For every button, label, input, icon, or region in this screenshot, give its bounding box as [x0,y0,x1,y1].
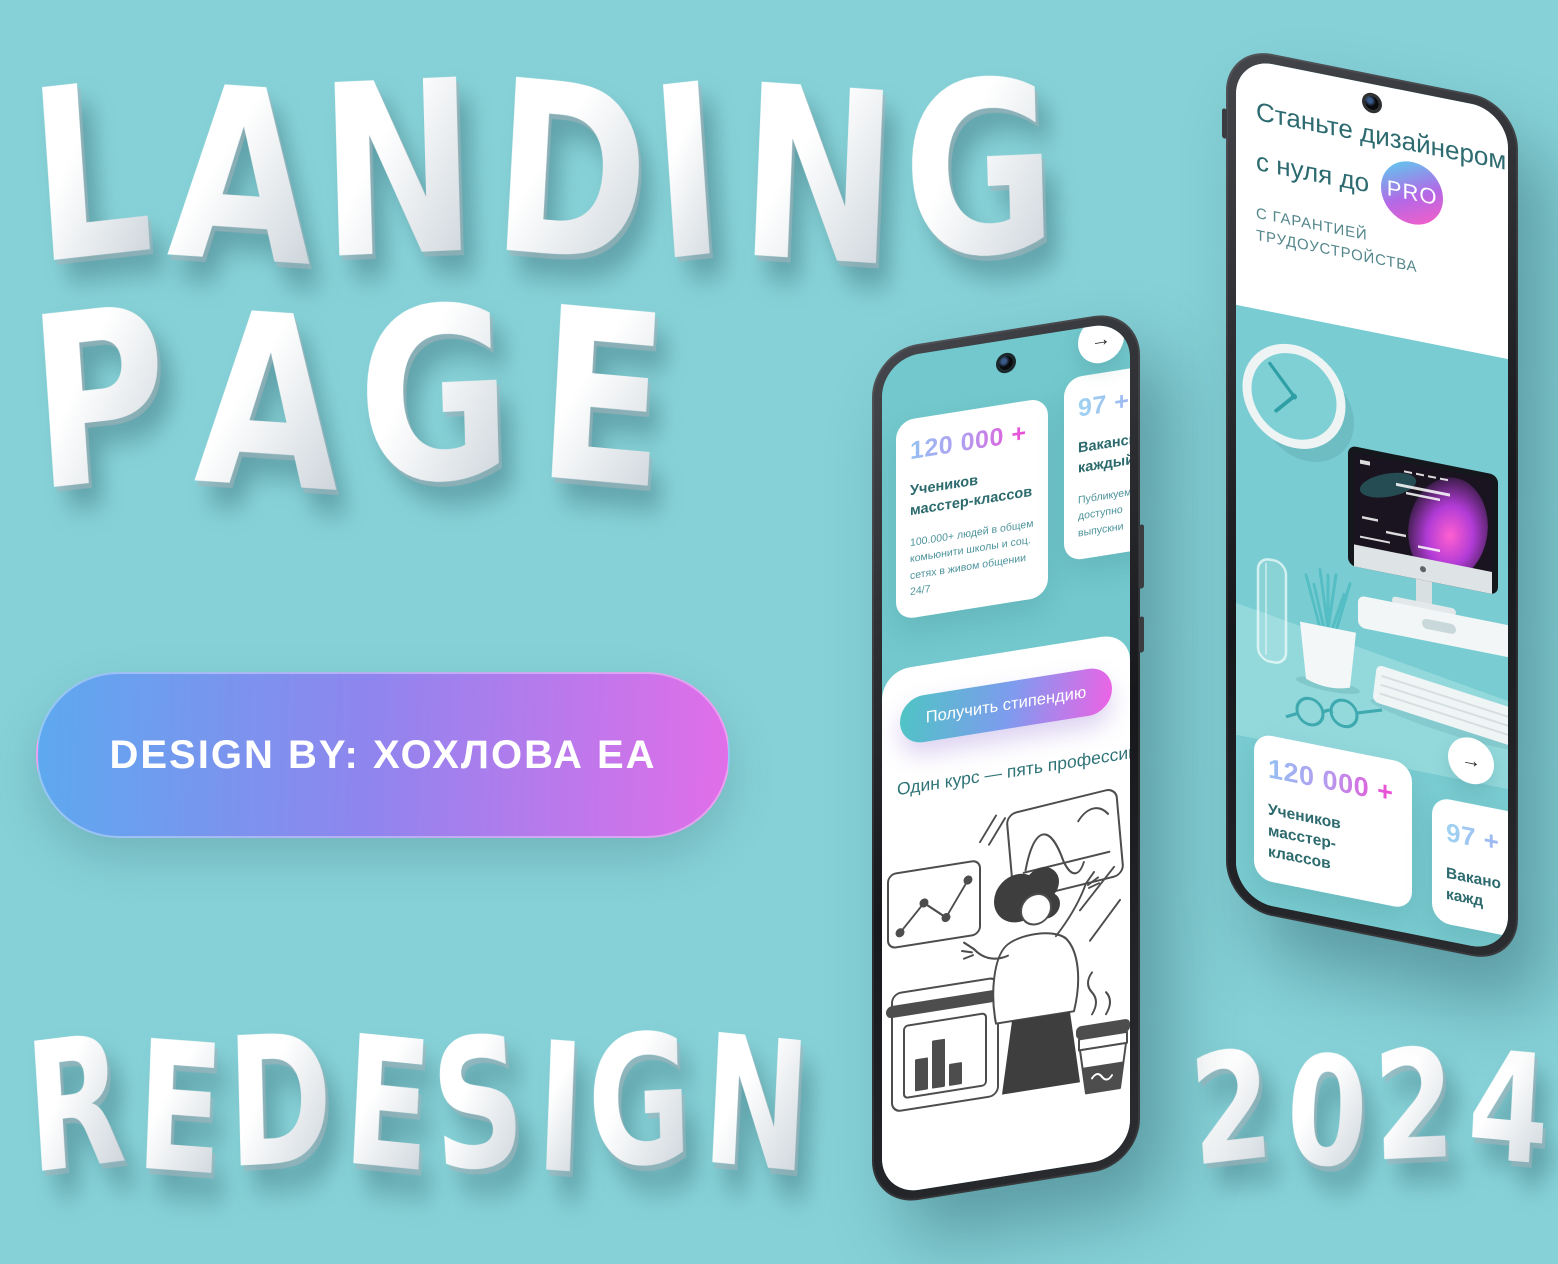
stat-title: Вакансий каждый [1078,420,1130,478]
workspace-photo [1236,305,1508,789]
stat-body: 100.000+ людей в общем комьюнити школы и… [910,516,1034,601]
volume-button [1139,524,1144,589]
hero-title-line2: с нуля до [1256,146,1369,200]
stat-title: Учеников масстер-классов [910,463,1034,522]
stat-card-students: 120 000 + Учеников масстер-классов 100.0… [896,397,1048,620]
side-button [1222,108,1227,139]
stat-value: 97 + [1078,375,1130,423]
poster-canvas: LANDING PAGE REDESIGN 2024 DESIGN BY: ХО… [0,0,1558,1264]
stat-title: Учеников масстер-классов [1268,800,1398,889]
stat-value: 120 000 + [1268,753,1398,810]
stat-card-vacancies: 97 + Вакансий каждый Публикуем доступно … [1064,355,1130,562]
front-camera [999,355,1013,371]
design-credit-pill: DESIGN BY: ХОХЛОВА ЕА [36,672,730,838]
course-section: Получить стипендию Один курс — пять проф… [882,632,1130,1195]
phone-mockup-right: Станьте дизайнером с нуля до PRO С ГАРАН… [1226,45,1518,965]
pro-badge: PRO [1381,156,1443,230]
phone-left-screen: → 120 000 + Учеников масстер-классов 100… [882,320,1130,1195]
stat-value: 120 000 + [910,418,1034,467]
get-scholarship-button[interactable]: Получить стипендию [900,665,1112,746]
stat-body: Публикуем доступно выпускни [1078,473,1130,541]
title-redesign: REDESIGN [30,1058,806,1184]
arrow-right-icon: → [1461,747,1481,774]
next-arrow-button[interactable]: → [1078,320,1124,366]
title-year: 2024 [1194,1062,1547,1178]
stat-value: 97 + [1446,817,1508,872]
analytics-illustration [884,774,1130,1143]
power-button [1139,616,1144,653]
title-page: PAGE [36,322,662,508]
arrow-right-icon: → [1091,327,1111,353]
stat-title: Вакано кажд [1446,864,1508,930]
phone-mockup-left: → 120 000 + Учеников масстер-классов 100… [872,309,1140,1207]
phone-right-screen: Станьте дизайнером с нуля до PRO С ГАРАН… [1236,57,1508,953]
